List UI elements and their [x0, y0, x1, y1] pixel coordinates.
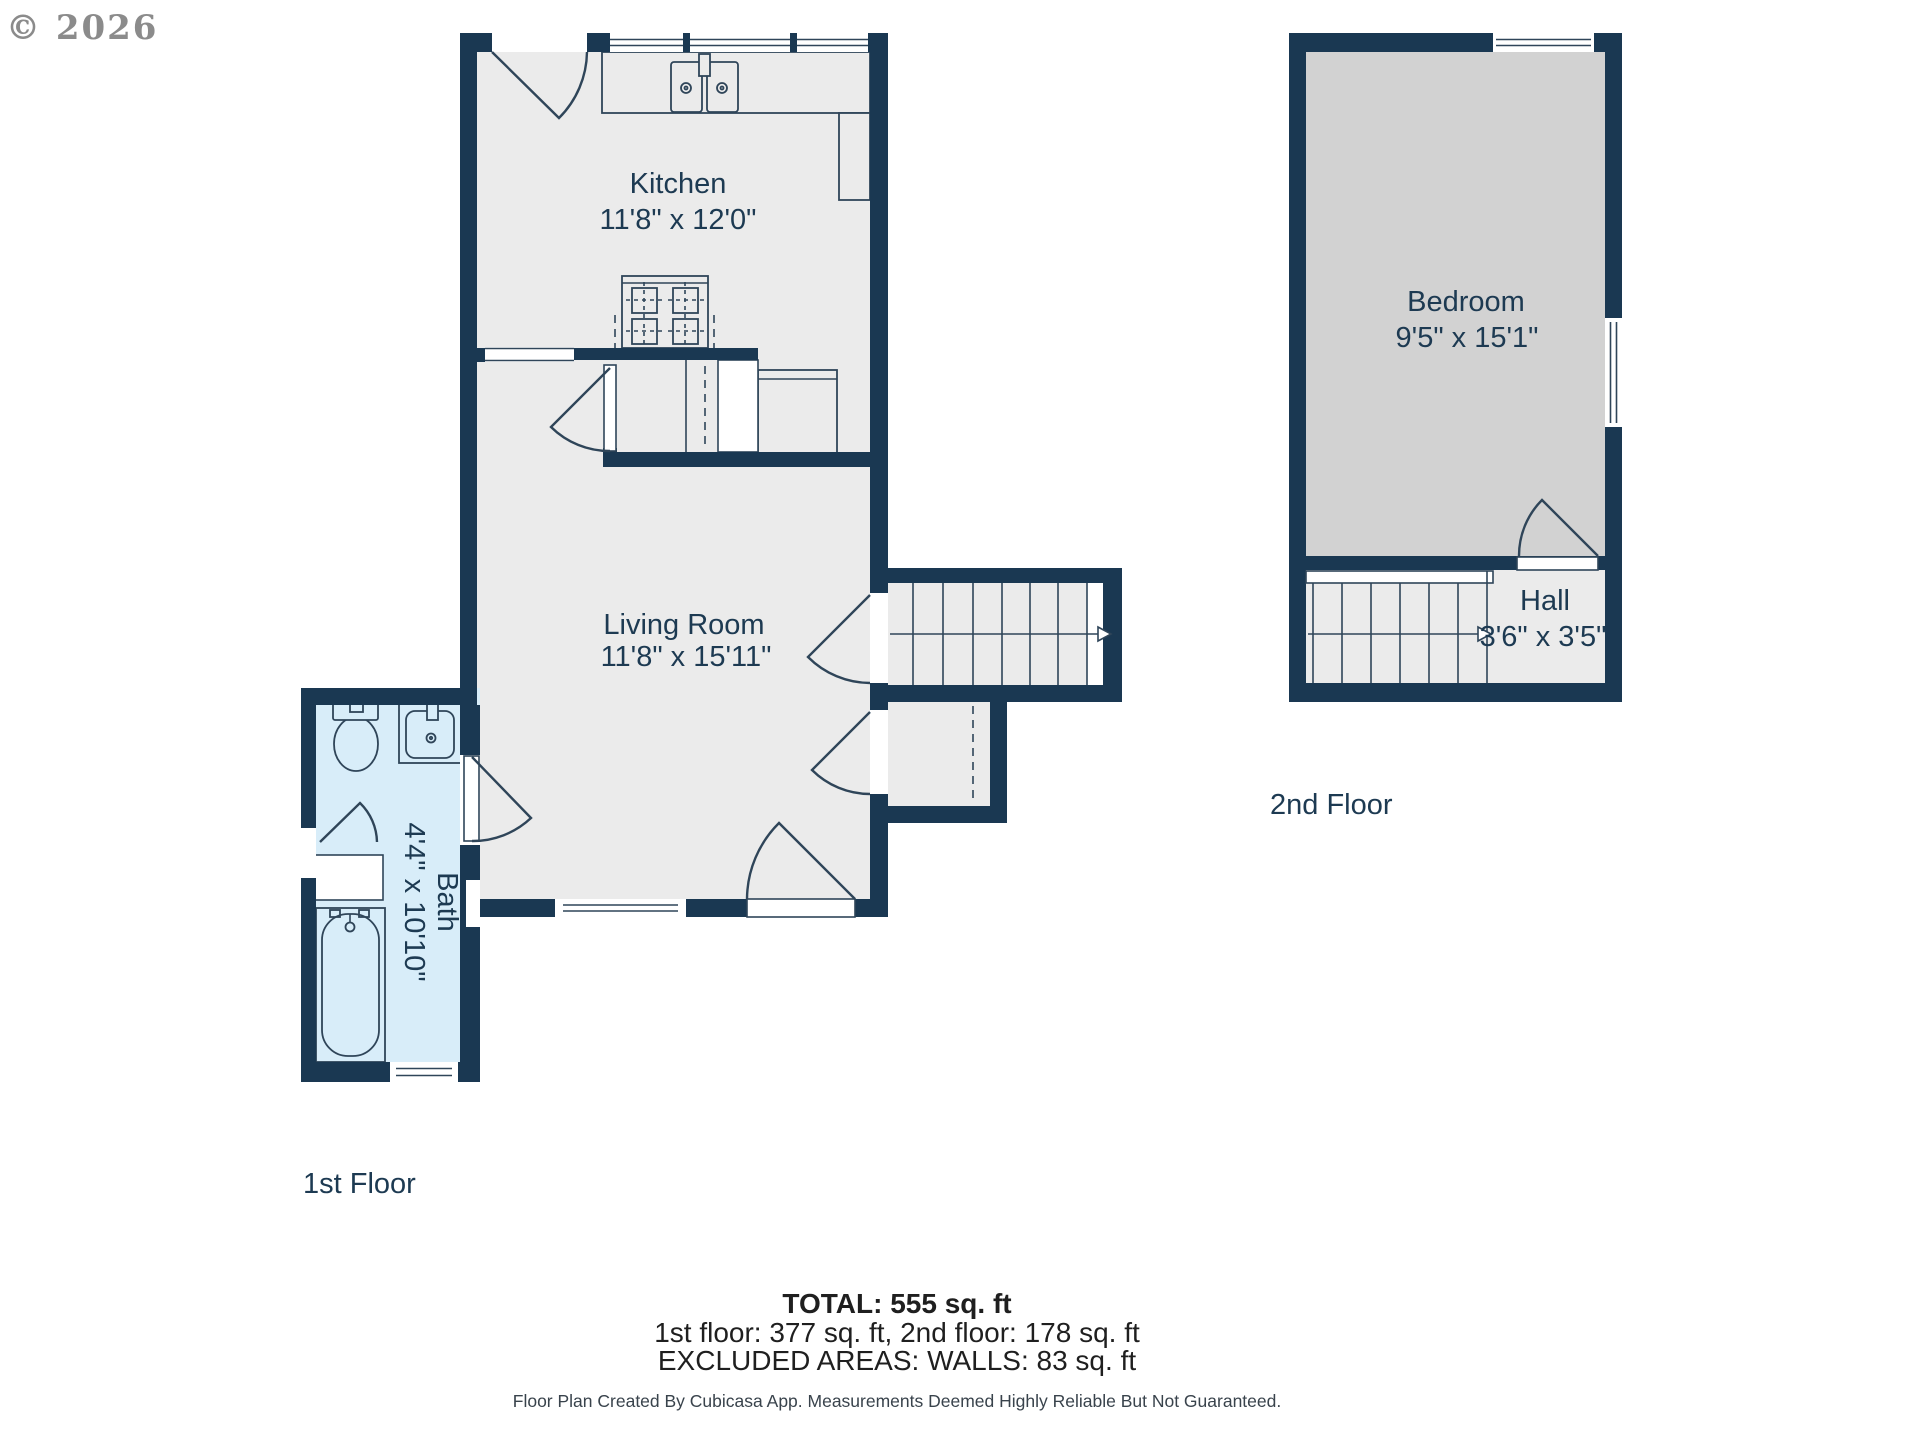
floor-plan-drawing	[0, 0, 1920, 1440]
stair-top-landing	[1306, 571, 1493, 583]
bedroom-label: Bedroom	[1407, 285, 1525, 319]
bath-cabinet	[315, 855, 383, 900]
kitchen-living-passage	[485, 347, 574, 362]
kitchen-label: Kitchen	[630, 167, 727, 201]
closet-void	[718, 360, 758, 452]
stair-door-opening	[870, 593, 888, 683]
bath-window	[390, 1062, 458, 1082]
refrigerator	[758, 370, 837, 455]
floor-areas-text: 1st floor: 377 sq. ft, 2nd floor: 178 sq…	[654, 1319, 1140, 1347]
first-floor-label: 1st Floor	[303, 1168, 416, 1201]
bath-dimensions: 4'4" x 10'10"	[398, 822, 430, 981]
bedroom-door-sill	[1517, 557, 1598, 570]
living-room-dimensions: 11'8" x 15'11"	[601, 640, 772, 674]
total-area-text: TOTAL: 555 sq. ft	[782, 1290, 1011, 1318]
second-floor-plan	[1289, 33, 1622, 702]
excluded-areas-text: EXCLUDED AREAS: WALLS: 83 sq. ft	[658, 1347, 1136, 1375]
bathroom-sink	[399, 700, 463, 763]
bath-label: Bath	[431, 872, 463, 932]
kitchen-window	[610, 33, 868, 52]
bedroom-top-window	[1488, 33, 1599, 52]
bath-left-niche	[301, 828, 316, 878]
bath-wall-niche	[466, 880, 480, 927]
disclaimer-text: Floor Plan Created By Cubicasa App. Meas…	[513, 1391, 1281, 1412]
stove	[615, 276, 714, 349]
hall-dimensions: 3'6" x 3'5"	[1480, 620, 1607, 654]
living-room-window	[555, 899, 686, 917]
under-stair-closet-area	[887, 702, 990, 806]
copyright-watermark: © 2026	[6, 8, 158, 48]
kitchen-door-opening	[492, 33, 587, 52]
main-floor-area	[460, 33, 888, 917]
hall-label: Hall	[1520, 584, 1570, 618]
bedroom-right-window	[1605, 313, 1622, 432]
second-floor-label: 2nd Floor	[1270, 789, 1393, 822]
entry-door-sill	[747, 899, 855, 917]
kitchen-dimensions: 11'8" x 12'0"	[600, 203, 757, 237]
living-room-label: Living Room	[603, 608, 764, 642]
floor-plan-page: © 2026 Kitchen 11'8" x 12'0" Living Room…	[0, 0, 1920, 1440]
closet-door-opening	[870, 710, 888, 794]
bedroom-dimensions: 9'5" x 15'1"	[1396, 321, 1539, 355]
bath-label-block: Bath 4'4" x 10'10"	[397, 782, 463, 1022]
